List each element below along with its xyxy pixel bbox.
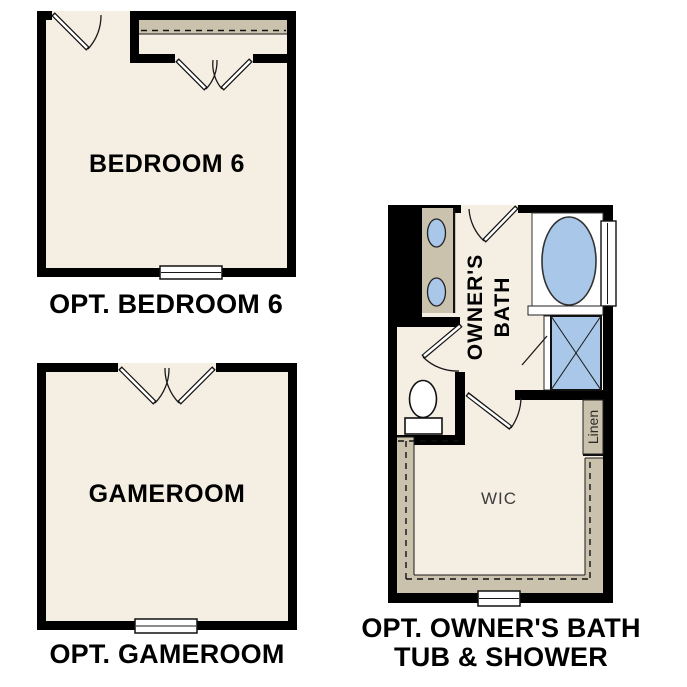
gameroom-caption: OPT. GAMEROOM	[26, 639, 308, 670]
closet-shelf	[139, 20, 287, 34]
bedroom6-closet	[139, 20, 287, 34]
bedroom6-plan	[37, 11, 296, 279]
sink-icon	[428, 219, 446, 247]
gameroom-room-label: GAMEROOM	[46, 480, 288, 509]
gameroom-window	[135, 619, 197, 633]
tub-ledge	[528, 306, 603, 315]
vanity	[422, 208, 455, 313]
wic-window	[478, 591, 520, 606]
owners-bath-label-line1: OWNER'S	[462, 217, 489, 397]
bathtub	[532, 213, 603, 307]
bedroom6-caption: OPT. BEDROOM 6	[26, 289, 306, 320]
owners-bath-label-line2: BATH	[489, 217, 516, 397]
owners-bath-room-label: OWNER'S BATH	[462, 217, 518, 397]
bathtub-icon	[542, 217, 596, 305]
floorplan-canvas	[0, 0, 687, 687]
owners-bath-caption-line1: OPT. OWNER'S BATH	[351, 613, 651, 644]
tub-window	[601, 221, 616, 306]
bedroom6-room-label: BEDROOM 6	[46, 150, 288, 179]
bedroom6-window	[160, 266, 222, 279]
bedroom6-floor	[37, 11, 296, 277]
wic-room-label: WIC	[459, 489, 539, 509]
shower-glass	[544, 316, 551, 390]
owners-bath-caption-line2: TUB & SHOWER	[351, 642, 651, 673]
linen-closet-label: Linen	[584, 397, 602, 457]
sink-icon	[428, 278, 446, 306]
